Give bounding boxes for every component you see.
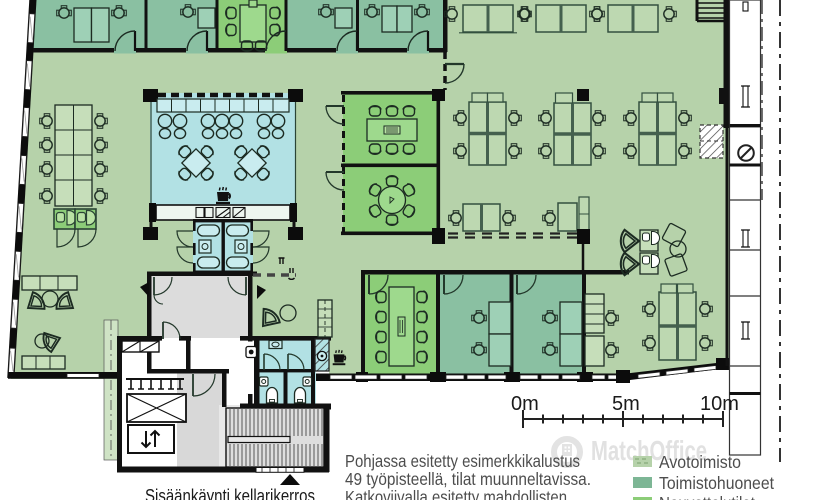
svg-text:49 työpisteellä, tilat muunnel: 49 työpisteellä, tilat muunneltavissa.: [345, 469, 591, 489]
svg-text:Avotoimisto: Avotoimisto: [659, 452, 741, 472]
svg-text:0m: 0m: [511, 393, 539, 415]
svg-text:Pohjassa esitetty esimerkkikal: Pohjassa esitetty esimerkkikalustus: [345, 451, 580, 471]
svg-text:10m: 10m: [700, 393, 739, 415]
svg-text:5m: 5m: [612, 393, 640, 415]
svg-text:Toimistohuoneet: Toimistohuoneet: [659, 473, 774, 493]
svg-text:Sisäänkäynti kellarikerros: Sisäänkäynti kellarikerros: [145, 486, 315, 500]
svg-text:Neuvottelutilat: Neuvottelutilat: [659, 493, 755, 500]
svg-text:Katkoviivalla esitetty mahdoll: Katkoviivalla esitetty mahdollisten: [345, 487, 567, 500]
